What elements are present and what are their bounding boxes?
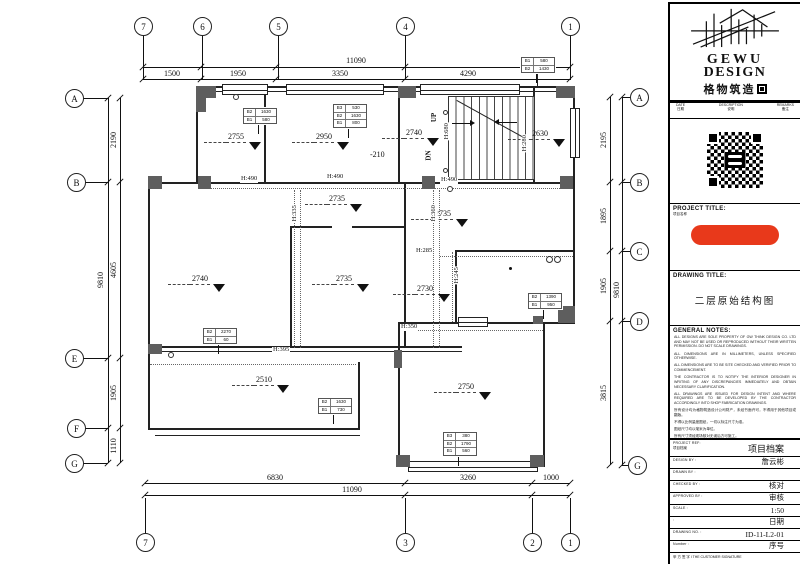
grid-bubble: D [630, 312, 649, 331]
grid-bubble-stem [278, 35, 279, 80]
column [566, 86, 575, 98]
grid-bubble-stem [202, 35, 203, 80]
beam-tag-code: B1 [529, 302, 541, 309]
elevation-triangle-icon [213, 284, 225, 292]
elevation-triangle-icon [337, 142, 349, 150]
beam-tag-leader [543, 309, 544, 319]
elevation-value: 2950 [314, 133, 334, 143]
general-note-line: ALL DESIGNS ARE SOLE PROPERTY OF GW THIN… [674, 335, 796, 349]
drawing-title-value: 二层原始结构图 [670, 293, 800, 307]
stair-up-label: UP [431, 113, 438, 122]
elevation-leader [393, 293, 415, 295]
elevation-triangle-icon [456, 219, 468, 227]
dimension-text: 9810 [97, 271, 105, 289]
elevation-marker: 2740 [382, 129, 439, 139]
dimension-text: 1895 [600, 207, 608, 225]
field-label: : [673, 518, 674, 522]
grid-bubble-stem [570, 498, 571, 533]
wall [148, 182, 575, 184]
beam-tag: B22270B160 [203, 328, 237, 344]
grid-bubble-stem [85, 182, 108, 183]
rev-col-remarks: REMARKS备注 [777, 104, 794, 117]
beam-tag-code: B1 [204, 337, 216, 344]
wall [150, 346, 462, 348]
field-value: 序号 [769, 540, 784, 551]
dimension-line [120, 98, 121, 463]
dimension-text: 4605 [110, 261, 118, 279]
column [422, 176, 435, 189]
field-label: DRAWING NO. : [673, 530, 702, 534]
beam-tag-value: 1790 [456, 441, 476, 448]
beam-tag-code: B3 [334, 105, 346, 112]
beam-tag-code: B3 [444, 433, 456, 440]
beam-tag-code: B2 [319, 399, 331, 406]
qr-finder [707, 176, 719, 188]
fixture-circle [447, 186, 453, 192]
column [394, 350, 402, 368]
dimension-text: 1905 [110, 384, 118, 402]
grid-bubble: C [630, 242, 649, 261]
elevation-value: 2735 [334, 275, 354, 285]
elevation-marker: 2630 [508, 130, 565, 140]
wall [358, 362, 360, 430]
elevation-triangle-icon [427, 138, 439, 146]
beam-tag-code: B2 [244, 109, 256, 116]
beam-tag-value: 1390 [541, 294, 561, 301]
general-note-line: THE CONTRACTOR IS TO NOTIFY THE INTERIOR… [674, 375, 796, 389]
dimension-text: 11090 [341, 486, 363, 494]
wall [290, 228, 292, 348]
dimension-line [622, 97, 623, 465]
wall [148, 428, 360, 430]
title-block-fields: PROJECT REF:项目档案项目档案DESIGN BY :詹云彬DRAWN … [670, 440, 800, 553]
grid-bubble-stem [83, 463, 108, 464]
logo-text-design: DESIGN [670, 66, 800, 79]
grid-bubble: 4 [396, 17, 415, 36]
field-value: 1:50 [771, 506, 784, 515]
logo-box: GEWU DESIGN 格物筑造 [670, 4, 800, 103]
grid-bubble: A [65, 89, 84, 108]
window [286, 84, 384, 95]
dimension-text: 4290 [459, 70, 477, 78]
dashed-level-line [452, 252, 453, 322]
field-value: ID-11-L2-01 [746, 530, 784, 539]
beam-tag-row: B21630 [334, 113, 366, 121]
beam-tag-row: B1560 [444, 448, 476, 455]
column [530, 455, 544, 467]
dimension-text: 1000 [542, 474, 560, 482]
grid-bubble: 7 [134, 17, 153, 36]
stair-up-arrow [452, 123, 472, 124]
rev-col-date: DATE日期 [676, 104, 685, 117]
qr-box [670, 119, 800, 204]
stair-dn-arrow [497, 122, 517, 123]
dimension-text: 2190 [110, 131, 118, 149]
dimension-text: 2195 [600, 131, 608, 149]
elevation-leader [168, 283, 190, 285]
elevation-value: 2630 [530, 130, 550, 140]
grid-bubble-stem [405, 498, 406, 533]
elevation-marker: 2730 [393, 285, 450, 295]
title-block: GEWU DESIGN 格物筑造 DATE日期 DESCRIPTION说明 RE… [668, 2, 800, 564]
logo-text-cn: 格物筑造 [670, 81, 800, 97]
general-note-line: 不得以比例量度图纸，一切以标注尺寸为准。 [674, 420, 796, 425]
height-label: H:680 [444, 122, 451, 140]
height-label: H:245 [454, 266, 461, 284]
field-value: 日期 [769, 516, 784, 527]
elevation-leader [312, 283, 334, 285]
dashed-level-line [150, 364, 356, 365]
elevation-value: 2510 [254, 376, 274, 386]
beam-tag-row: B1580 [522, 58, 554, 66]
general-note-line: ALL DIMENSIONS ARE TO BE SITE CHECKED AN… [674, 363, 796, 372]
beam-tag-code: B1 [244, 117, 256, 124]
wall [455, 250, 575, 252]
grid-bubble-stem [622, 251, 630, 252]
grid-bubble-stem [622, 182, 630, 183]
elevation-value: 2730 [415, 285, 435, 295]
grid-bubble-stem [622, 321, 630, 322]
beam-tag-value: 1630 [346, 113, 366, 120]
dimension-text: 1110 [110, 437, 118, 454]
general-note-line: ALL DIMENSIONS ARE IN MILLIMETERS, UNLES… [674, 352, 796, 361]
window [408, 461, 538, 472]
elevation-marker: 2510 [232, 376, 289, 386]
elevation-triangle-icon [479, 392, 491, 400]
beam-tag-value: 580 [256, 117, 276, 124]
field-value: 审核 [769, 492, 784, 503]
beam-tag-row: B21430 [522, 66, 554, 73]
general-notes-text: ALL DESIGNS ARE SOLE PROPERTY OF GW THIN… [670, 334, 800, 440]
beam-tag-value: 380 [456, 433, 476, 440]
field-label: APPROVED BY : [673, 494, 703, 498]
elevation-leader [382, 137, 404, 139]
general-note-line: 所有设计均为格物筑造设计公司财产，未经书面许可，不得用于其他项目或翻版。 [674, 408, 796, 417]
grid-bubble-stem [83, 358, 108, 359]
elevation-leader [204, 141, 226, 143]
qr-center-logo [725, 152, 745, 168]
dimension-text: 3350 [331, 70, 349, 78]
height-label: H:335 [292, 204, 299, 222]
beam-tag-value: 1430 [534, 66, 554, 73]
column [148, 344, 162, 354]
beam-tag-row: B1580 [244, 117, 276, 124]
dimension-text: 11090 [345, 57, 367, 65]
height-label: H:395 [272, 347, 290, 354]
beam-tag-value: 1630 [331, 399, 351, 406]
beam-tag-row: B1950 [529, 302, 561, 309]
beam-tag-leader [458, 456, 459, 466]
fixture-circle [233, 94, 239, 100]
grid-bubble-stem [532, 498, 533, 533]
grid-bubble: 2 [523, 533, 542, 552]
general-notes-box: GENERAL NOTES: ALL DESIGNS ARE SOLE PROP… [670, 326, 800, 440]
beam-tag-value: 60 [216, 337, 236, 344]
dashed-level-line [440, 256, 573, 257]
elevation-value: 2750 [456, 383, 476, 393]
project-title-label: PROJECT TITLE: [670, 204, 800, 212]
grid-bubble: 5 [269, 17, 288, 36]
beam-tag-code: B1 [334, 120, 346, 127]
customer-signature-box: 甲 方 签 字 l THE CUSTOMER SIGNATURE [670, 553, 800, 564]
dimension-line [108, 98, 109, 463]
dimension-text: 1905 [600, 277, 608, 295]
grid-bubble: B [67, 173, 86, 192]
beam-tag-row: B21790 [444, 441, 476, 449]
beam-tag-row: B21390 [529, 294, 561, 302]
general-note-line: ALL DRAWINGS ARE ISSUED FOR DESIGN INTEN… [674, 392, 796, 406]
field-label: DRAWN BY : [673, 470, 696, 474]
height-label: H:490 [240, 176, 258, 183]
grid-bubble: 7 [136, 533, 155, 552]
height-label: H:490 [440, 177, 458, 184]
elevation-triangle-icon [350, 204, 362, 212]
window [222, 84, 268, 95]
beam-tag-value: 950 [541, 302, 561, 309]
dimension-line [145, 483, 570, 484]
fixture-dot [509, 267, 512, 270]
title-block-field-row: Number :序号 [670, 541, 800, 553]
grid-bubble: G [65, 454, 84, 473]
dimension-line [145, 495, 570, 496]
beam-tag-value: 1630 [256, 109, 276, 116]
fixture-circle [168, 352, 174, 358]
project-title-box: PROJECT TITLE: 项目名称 [670, 204, 800, 271]
title-block-field-row: :日期 [670, 517, 800, 529]
beam-tag-code: B2 [522, 66, 534, 73]
wall [264, 86, 266, 184]
dimension-tick [116, 459, 123, 466]
elevation-triangle-icon [438, 294, 450, 302]
qr-finder [707, 132, 719, 144]
grid-bubble: E [65, 349, 84, 368]
elevation-leader [292, 141, 314, 143]
wall [148, 182, 150, 430]
column [533, 316, 543, 324]
dimension-text: 3260 [459, 474, 477, 482]
logo-seal-icon [757, 84, 767, 94]
wall [290, 226, 332, 228]
elevation-value: 2755 [226, 133, 246, 143]
grid-bubble-stem [83, 98, 108, 99]
general-notes-label: GENERAL NOTES: [670, 326, 800, 334]
stair-dn-label: DN [426, 150, 433, 160]
beam-tag-code: B2 [334, 113, 346, 120]
dimension-text: 1500 [163, 70, 181, 78]
elevation-marker: 2735 [411, 210, 468, 220]
beam-tag-row: B3380 [444, 433, 476, 441]
elevation-value: 2740 [404, 129, 424, 139]
elevation-triangle-icon [249, 142, 261, 150]
grid-bubble: 6 [193, 17, 212, 36]
grid-bubble-stem [405, 35, 406, 80]
elevation-triangle-icon [277, 385, 289, 393]
wall [455, 250, 457, 324]
height-label: H:280 [522, 134, 529, 152]
dimension-tick [566, 479, 573, 486]
grid-bubble-stem [570, 35, 571, 80]
beam-tag-value: 800 [346, 120, 366, 127]
beam-tag: B21390B1950 [528, 293, 562, 309]
window [420, 84, 520, 95]
beam-tag-code: B2 [529, 294, 541, 301]
elevation-triangle-icon [357, 284, 369, 292]
revision-header: DATE日期 DESCRIPTION说明 REMARKS备注 [670, 103, 800, 119]
rev-col-description: DESCRIPTION说明 [719, 104, 743, 117]
wall [150, 351, 462, 352]
elevation-value: 2740 [190, 275, 210, 285]
beam-tag: B3530B21630B1800 [333, 104, 367, 128]
beam-tag: B21630B1580 [243, 108, 277, 124]
elevation-leader [232, 384, 254, 386]
drawing-title-box: DRAWING TITLE: 二层原始结构图 [670, 271, 800, 326]
dashed-level-line [300, 190, 301, 348]
dimension-line [610, 97, 611, 465]
dimension-text: 9810 [613, 281, 621, 299]
beam-tag-value: 530 [346, 105, 366, 112]
grid-bubble: 1 [561, 17, 580, 36]
beam-tag-row: B1800 [334, 120, 366, 127]
column [396, 455, 410, 467]
field-label: SCALE : [673, 506, 688, 510]
beam-tag-value: 580 [534, 58, 554, 65]
grid-bubble: A [630, 88, 649, 107]
fixture-circle [546, 256, 553, 263]
elevation-marker: -210 [370, 151, 385, 159]
column [560, 176, 573, 189]
elevation-leader [305, 203, 327, 205]
grid-bubble: F [67, 419, 86, 438]
wall [155, 435, 360, 436]
height-label: H:285 [415, 248, 433, 255]
elevation-triangle-icon [553, 139, 565, 147]
beam-tag-value: 730 [331, 407, 351, 414]
beam-tag-leader [536, 73, 537, 83]
beam-tag-code: B1 [522, 58, 534, 65]
dimension-line [143, 79, 570, 80]
stair-up-arrowhead [470, 120, 475, 126]
beam-tag-row: B3530 [334, 105, 366, 113]
beam-tag: B3380B21790B1560 [443, 432, 477, 456]
dimension-text: 3815 [600, 384, 608, 402]
fixture-circle [443, 168, 448, 173]
grid-bubble: 1 [561, 533, 580, 552]
beam-tag-code: B1 [319, 407, 331, 414]
beam-tag-row: B160 [204, 337, 236, 344]
beam-tag-value: 560 [456, 448, 476, 455]
height-label: H:490 [326, 174, 344, 181]
elevation-value: 2735 [327, 195, 347, 205]
wall [352, 226, 406, 228]
beam-tag-row: B21630 [244, 109, 276, 117]
field-label: DESIGN BY : [673, 458, 696, 462]
general-note-line: 所有尺寸须经现场核对无误后方可施工。 [674, 434, 796, 439]
beam-tag: B21630B1730 [318, 398, 352, 414]
elevation-marker: 2755 [204, 133, 261, 143]
dimension-tick [606, 461, 613, 468]
qr-code [707, 132, 763, 188]
column [198, 176, 211, 189]
qr-finder [751, 132, 763, 144]
beam-tag-row: B21630 [319, 399, 351, 407]
logo-text-gewu: GEWU [670, 53, 800, 66]
title-block-field-row: DESIGN BY :詹云彬 [670, 457, 800, 469]
fixture-circle [554, 256, 561, 263]
dimension-line [143, 67, 570, 68]
beam-tag-row: B1730 [319, 407, 351, 414]
elevation-value: -210 [370, 151, 385, 159]
field-label: CHECKED BY : [673, 482, 700, 486]
fixture-circle [443, 110, 448, 115]
elevation-marker: 2950 [292, 133, 349, 143]
column [398, 86, 416, 98]
beam-tag-code: B2 [444, 441, 456, 448]
beam-tag-leader [333, 414, 334, 424]
elevation-marker: 2735 [312, 275, 369, 285]
dimension-text: 1950 [229, 70, 247, 78]
stair-dn-arrowhead [494, 119, 499, 125]
beam-tag: B1580B21430 [521, 57, 555, 73]
drawing-sheet: 76541ABEFGABCDG7321110901500195033504290… [0, 0, 800, 564]
general-note-line: 图纸尺寸均以毫米为单位。 [674, 427, 796, 432]
elevation-marker: 2735 [305, 195, 362, 205]
wall [398, 322, 400, 467]
field-label: PROJECT REF: [673, 441, 701, 445]
dimension-text: 6830 [266, 474, 284, 482]
gewu-logo-lineart [687, 6, 783, 48]
grid-bubble-stem [85, 428, 108, 429]
grid-bubble: B [630, 173, 649, 192]
field-sublabel: 项目档案 [673, 446, 687, 451]
grid-bubble: G [628, 456, 647, 475]
title-block-field-row: PROJECT REF:项目档案项目档案 [670, 440, 800, 457]
grid-bubble-stem [622, 97, 630, 98]
field-value: 项目档案 [748, 442, 784, 455]
beam-tag-code: B1 [444, 448, 456, 455]
beam-tag-row: B22270 [204, 329, 236, 337]
field-label: Number : [673, 542, 689, 546]
dashed-level-line [200, 188, 570, 189]
drawing-title-label: DRAWING TITLE: [670, 271, 800, 279]
elevation-leader [434, 391, 456, 393]
field-value: 核对 [769, 480, 784, 491]
field-value: 詹云彬 [762, 456, 785, 467]
column [196, 96, 206, 112]
customer-signature-label: 甲 方 签 字 l THE CUSTOMER SIGNATURE [673, 555, 742, 560]
beam-tag-leader [218, 344, 219, 354]
grid-bubble: 3 [396, 533, 415, 552]
elevation-marker: 2740 [168, 275, 225, 285]
elevation-marker: 2750 [434, 383, 491, 393]
dashed-level-line [402, 330, 543, 331]
project-name-redaction [691, 225, 779, 245]
column [148, 176, 162, 189]
height-label: H:360 [431, 204, 438, 222]
grid-bubble-stem [143, 35, 144, 80]
window [458, 317, 488, 327]
project-title-sub: 项目名称 [670, 212, 800, 217]
beam-tag-code: B2 [204, 329, 216, 336]
wall [543, 322, 545, 467]
beam-tag-value: 2270 [216, 329, 236, 336]
height-label: H:350 [400, 324, 418, 331]
grid-bubble-stem [145, 498, 146, 533]
title-block-field-row: APPROVED BY :审核 [670, 493, 800, 505]
window [570, 108, 580, 158]
